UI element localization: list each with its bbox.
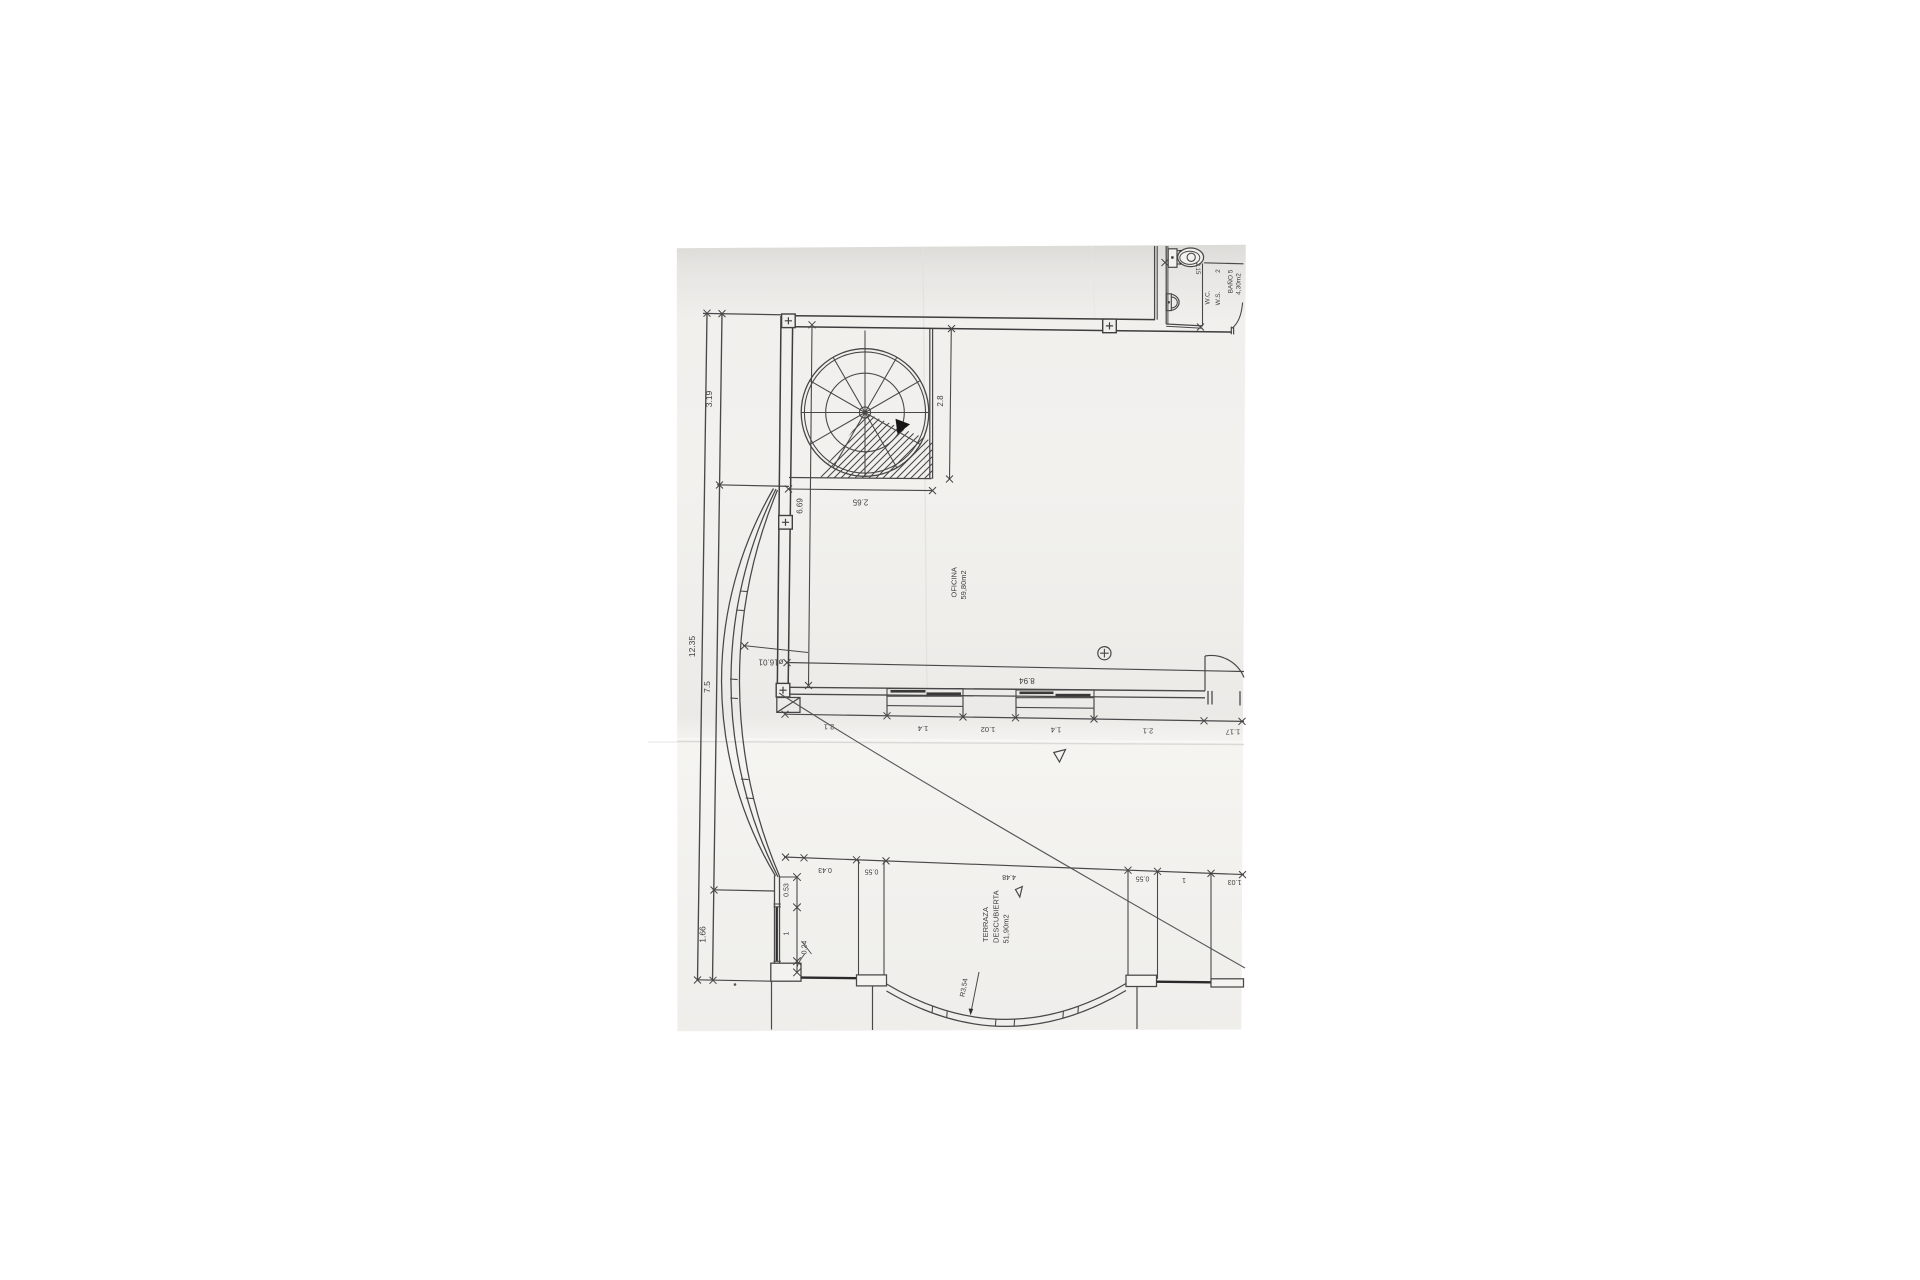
svg-text:W.C.: W.C. (1205, 290, 1212, 304)
svg-text:0.55: 0.55 (865, 868, 879, 875)
svg-text:1: 1 (1182, 876, 1186, 883)
svg-text:12.35: 12.35 (687, 636, 697, 658)
svg-text:2.8: 2.8 (936, 395, 945, 407)
svg-text:1.4: 1.4 (1051, 725, 1061, 734)
svg-text:OFICINA: OFICINA (950, 567, 959, 597)
svg-text:1.03: 1.03 (1228, 878, 1242, 885)
svg-text:W.S.: W.S. (1215, 291, 1222, 305)
svg-text:1: 1 (784, 931, 791, 935)
svg-text:2.15: 2.15 (1194, 263, 1200, 275)
svg-text:1.4: 1.4 (918, 724, 928, 733)
svg-text:0.43: 0.43 (818, 866, 832, 873)
svg-text:BAÑO 5: BAÑO 5 (1225, 269, 1234, 293)
svg-text:51,90m2: 51,90m2 (1002, 914, 1011, 943)
svg-text:8.94: 8.94 (1019, 676, 1035, 685)
svg-text:59,80m2: 59,80m2 (959, 570, 968, 599)
svg-text:DESCUBIERTA: DESCUBIERTA (992, 890, 1001, 943)
svg-text:4,30m2: 4,30m2 (1236, 273, 1243, 295)
svg-text:1.66: 1.66 (698, 926, 708, 943)
svg-text:1.17: 1.17 (1226, 728, 1241, 737)
svg-text:ø16.01: ø16.01 (758, 658, 783, 667)
svg-text:6.69: 6.69 (796, 498, 805, 514)
svg-text:2.65: 2.65 (852, 498, 868, 507)
svg-text:1.02: 1.02 (981, 725, 996, 734)
svg-text:TERRAZA: TERRAZA (981, 907, 990, 942)
svg-text:0.55: 0.55 (1136, 874, 1150, 881)
svg-text:7.5: 7.5 (702, 681, 712, 693)
svg-text:3.19: 3.19 (704, 390, 714, 407)
svg-text:2.1: 2.1 (1143, 727, 1153, 736)
svg-text:4.48: 4.48 (1002, 873, 1016, 880)
svg-text:2: 2 (1215, 269, 1222, 273)
svg-text:0.53: 0.53 (784, 883, 791, 897)
